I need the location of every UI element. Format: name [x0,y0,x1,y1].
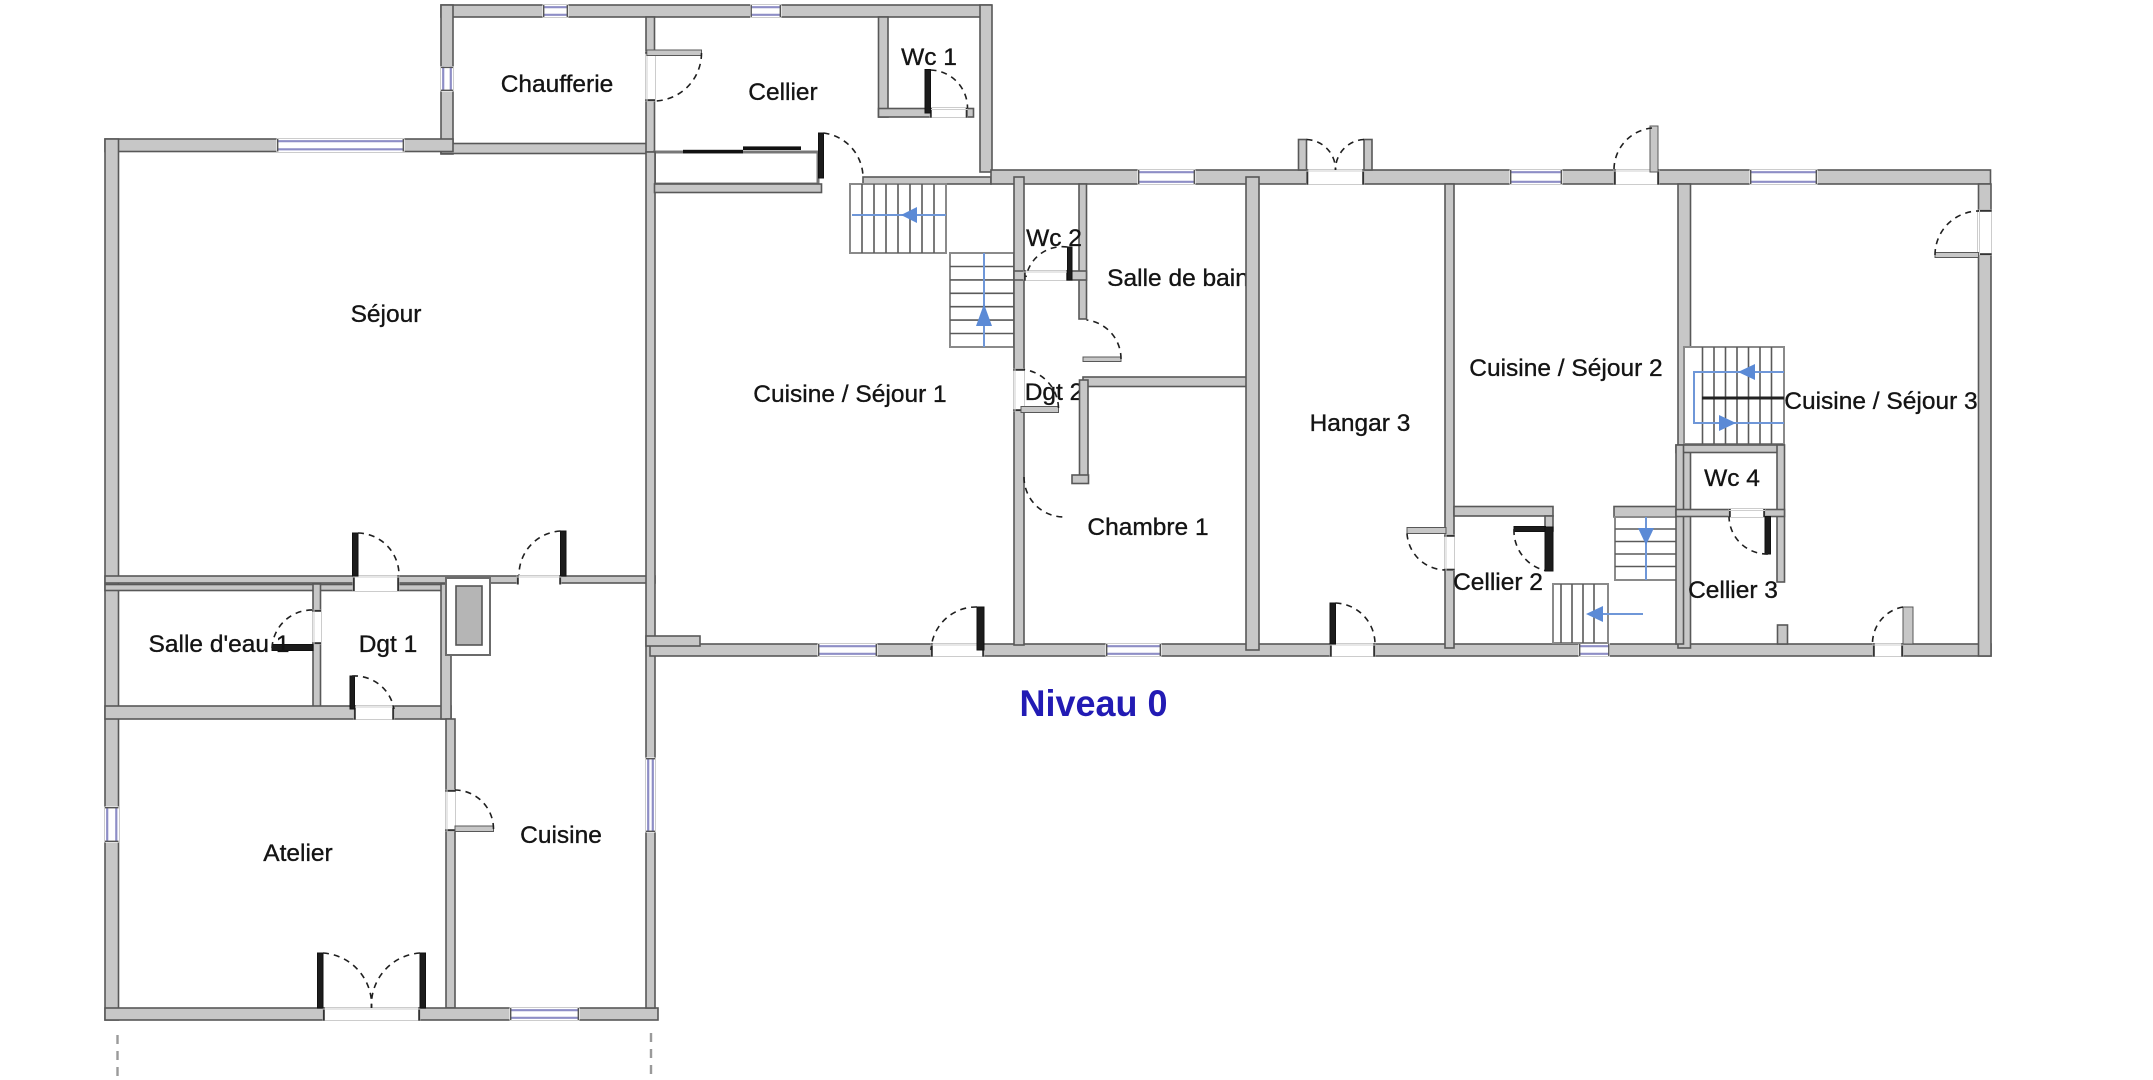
svg-text:Dgt 1: Dgt 1 [359,631,418,658]
svg-text:Salle d'eau 1: Salle d'eau 1 [149,631,290,658]
svg-text:Chaufferie: Chaufferie [501,71,614,98]
svg-text:Chambre 1: Chambre 1 [1087,514,1208,541]
svg-text:Dgt 2: Dgt 2 [1025,379,1084,406]
svg-text:Wc 1: Wc 1 [901,44,957,71]
svg-text:Cuisine / Séjour 1: Cuisine / Séjour 1 [753,381,946,408]
svg-text:Cuisine / Séjour 2: Cuisine / Séjour 2 [1469,355,1662,382]
svg-text:Cuisine / Séjour 3: Cuisine / Séjour 3 [1784,388,1977,415]
svg-text:Wc 4: Wc 4 [1704,465,1760,492]
svg-text:Niveau 0: Niveau 0 [1020,683,1168,724]
svg-text:Cellier 3: Cellier 3 [1688,577,1778,604]
svg-text:Hangar 3: Hangar 3 [1310,410,1411,437]
svg-text:Cuisine: Cuisine [520,822,602,849]
svg-text:Cellier: Cellier [748,79,817,106]
svg-text:Salle de bain: Salle de bain [1107,265,1249,292]
svg-text:Atelier: Atelier [263,840,332,867]
svg-text:Wc 2: Wc 2 [1026,225,1082,252]
svg-text:Cellier 2: Cellier 2 [1453,569,1543,596]
svg-text:Séjour: Séjour [351,301,422,328]
